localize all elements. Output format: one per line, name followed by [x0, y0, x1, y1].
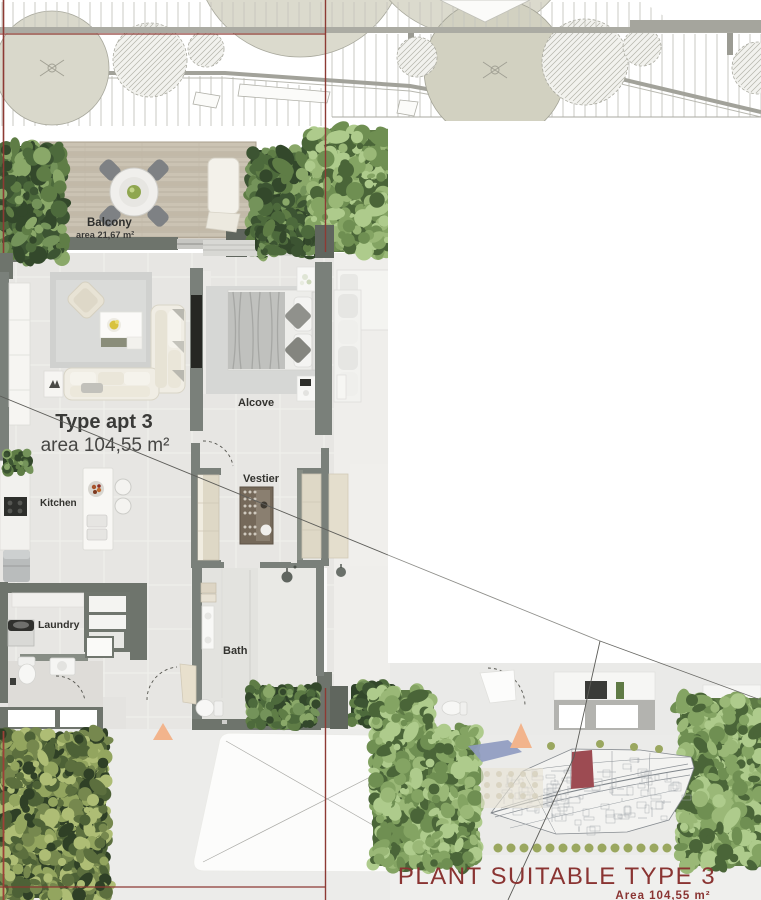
svg-text:area 104,55 m²: area 104,55 m²	[41, 435, 170, 456]
svg-text:Vestier: Vestier	[243, 473, 280, 485]
svg-text:Balcony: Balcony	[87, 217, 132, 229]
svg-text:Laundry: Laundry	[38, 619, 80, 631]
svg-text:Type apt 3: Type apt 3	[55, 411, 152, 433]
svg-text:Alcove: Alcove	[238, 397, 274, 409]
svg-text:Area 104,55 m²: Area 104,55 m²	[615, 890, 710, 900]
svg-text:area 21,67 m²: area 21,67 m²	[76, 230, 134, 240]
svg-text:PLANT SUITABLE TYPE 3: PLANT SUITABLE TYPE 3	[398, 863, 716, 890]
svg-text:Kitchen: Kitchen	[40, 498, 77, 509]
svg-text:Bath: Bath	[223, 645, 248, 657]
